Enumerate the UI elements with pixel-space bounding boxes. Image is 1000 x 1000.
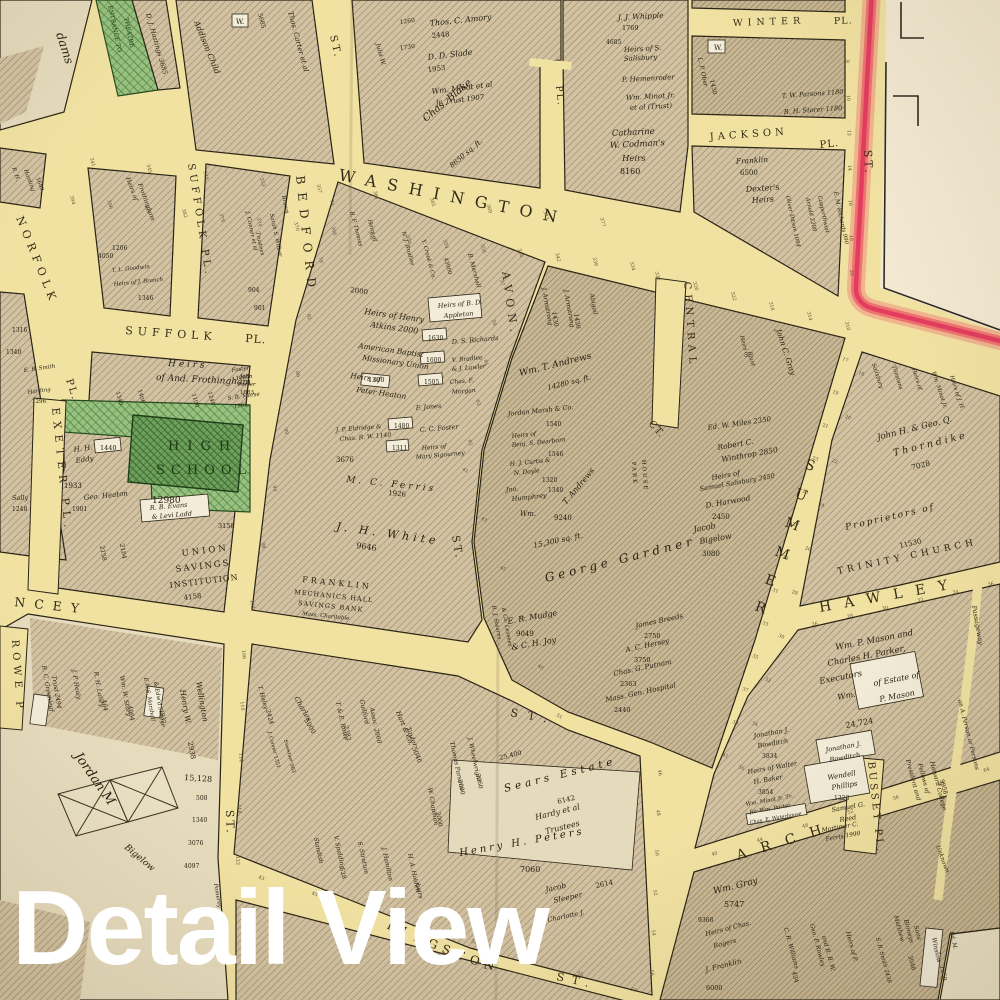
lot-number: 74 bbox=[328, 199, 335, 206]
parcel-label: Heirs bbox=[751, 194, 775, 205]
lot-number: 114 bbox=[237, 753, 244, 763]
parcel-label: H e i r s bbox=[167, 359, 205, 371]
parcel-label: 1505 bbox=[424, 379, 439, 386]
street-label: PL. bbox=[819, 138, 840, 151]
parcel-label: 9049 bbox=[516, 630, 534, 638]
street-label: PL. bbox=[834, 15, 853, 27]
parcel-label: 3676 bbox=[336, 456, 354, 464]
parcel-label: Heirs bbox=[621, 154, 646, 164]
adjacent-plate-blank bbox=[880, 0, 1000, 332]
lot-number: 86 bbox=[294, 371, 301, 378]
parcel-label: 1480 bbox=[394, 423, 409, 430]
parcel-label: 500 bbox=[196, 795, 208, 802]
parcel-label: 901 bbox=[254, 305, 265, 312]
lot-number: 16 bbox=[847, 200, 854, 207]
parcel-label: W. bbox=[714, 44, 722, 52]
street-label: ST. bbox=[861, 149, 875, 175]
parcel-label: 4050 bbox=[98, 253, 113, 260]
parcel-label: 8160 bbox=[620, 167, 640, 176]
lot-number: 110 bbox=[239, 701, 246, 711]
parcel-label: 3080 bbox=[702, 550, 720, 558]
parcel-label: 1540 bbox=[546, 421, 561, 428]
parcel-label: 1933 bbox=[64, 482, 82, 490]
lot-number: 106 bbox=[240, 650, 247, 660]
parcel-label: 3076 bbox=[188, 840, 203, 847]
parcel-label: 1546 bbox=[548, 451, 563, 458]
lot-number: 14 bbox=[846, 165, 853, 172]
lot-number: 48 bbox=[654, 809, 661, 816]
lot-number: 10 bbox=[845, 95, 852, 102]
lot-number: 28 bbox=[847, 613, 854, 620]
lot-number: 54 bbox=[650, 929, 657, 936]
parcel-label: 1300 bbox=[368, 376, 385, 384]
parcel-label: Porter bbox=[237, 382, 256, 388]
parcel-label: 9240 bbox=[554, 514, 572, 522]
parcel-label: HIGH bbox=[168, 439, 238, 454]
atlas-map: 3943903863823783743703663623583543503463… bbox=[0, 0, 1000, 1000]
parcel-label: 1340 bbox=[6, 349, 21, 356]
parcel-label: 1440 bbox=[100, 444, 117, 452]
parcel-label: 3854 bbox=[758, 789, 773, 796]
lot-number: 90 bbox=[282, 428, 289, 435]
parcel-label: SCHOOL bbox=[156, 463, 252, 478]
parcel-label: 1323 bbox=[834, 795, 849, 802]
street-label: PL. bbox=[245, 332, 267, 346]
parcel-label: 1769 bbox=[622, 24, 639, 32]
lot-number: 26 bbox=[811, 621, 818, 628]
lot-number: 52 bbox=[651, 889, 658, 896]
parcel-label: 1346 bbox=[138, 295, 153, 302]
lot-number: 82 bbox=[305, 314, 312, 321]
parcel-label: Wm. bbox=[520, 510, 536, 518]
lot-number: 122 bbox=[234, 856, 241, 866]
lot-number: 78 bbox=[317, 256, 324, 263]
lot-number: 94 bbox=[271, 485, 278, 492]
parcel-label: 3158 bbox=[218, 522, 235, 530]
parcel-label: 4685 bbox=[606, 39, 621, 46]
parcel-label: 1901 bbox=[72, 506, 87, 513]
parcel-label: 1316 bbox=[12, 327, 27, 334]
lot-number: 20 bbox=[848, 270, 855, 277]
parcel-label: 3834 bbox=[762, 753, 777, 760]
parcel-label: Sally bbox=[12, 494, 28, 502]
parcel-label: 6000 bbox=[706, 984, 723, 992]
parcel-label: 1600 bbox=[426, 357, 441, 364]
parcel-label: 1248 bbox=[12, 506, 27, 513]
parcel-label: 1311 bbox=[392, 445, 407, 452]
parcel-label: 1340 bbox=[548, 487, 563, 494]
detail-view-label: Detail View bbox=[12, 868, 548, 989]
parcel-label: W. bbox=[236, 18, 244, 26]
parcel-label: 9368 bbox=[698, 917, 713, 924]
parcel-label: 2450 bbox=[712, 513, 730, 521]
parcel-label: 5747 bbox=[724, 900, 744, 909]
parcel-label: Jno. bbox=[503, 485, 518, 494]
lot-number: 30 bbox=[882, 605, 889, 612]
map-detail-view: 3943903863823783743703663623583543503463… bbox=[0, 0, 1000, 1000]
parcel-label: 2363 bbox=[620, 680, 637, 688]
parcel-label: 6500 bbox=[740, 169, 758, 177]
parcel-label: 1206 bbox=[112, 245, 127, 252]
lot-number: 98 bbox=[259, 542, 266, 549]
lot-number: 56 bbox=[648, 969, 655, 976]
lot-number: 36 bbox=[987, 581, 994, 588]
parcel-label: 2440 bbox=[614, 706, 631, 714]
lot-number: 12 bbox=[845, 130, 852, 137]
parcel-label: 904 bbox=[248, 287, 260, 294]
lot-number: 46 bbox=[656, 769, 663, 776]
parcel-label: 1340 bbox=[192, 817, 207, 824]
lot-number: 8 bbox=[844, 60, 850, 64]
parcel-label: 1630 bbox=[428, 335, 443, 342]
parcel-label: 1296 bbox=[32, 399, 46, 405]
lot-number: 50 bbox=[653, 849, 660, 856]
parcel-label: 1320 bbox=[542, 477, 557, 484]
street-label: ST. bbox=[223, 810, 237, 836]
